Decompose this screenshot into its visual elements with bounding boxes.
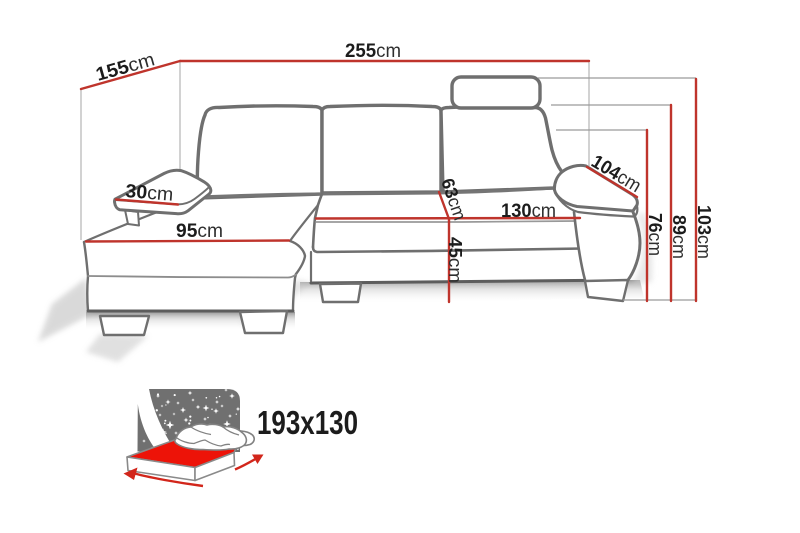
svg-text:89cm: 89cm [669, 215, 689, 259]
svg-text:103cm: 103cm [694, 205, 714, 259]
svg-text:130cm: 130cm [501, 201, 556, 222]
svg-text:45cm: 45cm [445, 237, 465, 283]
svg-text:193x130: 193x130 [257, 404, 358, 441]
svg-text:30cm: 30cm [125, 181, 174, 206]
svg-text:255cm: 255cm [345, 41, 401, 62]
svg-text:76cm: 76cm [645, 213, 665, 256]
svg-text:95cm: 95cm [176, 221, 223, 242]
